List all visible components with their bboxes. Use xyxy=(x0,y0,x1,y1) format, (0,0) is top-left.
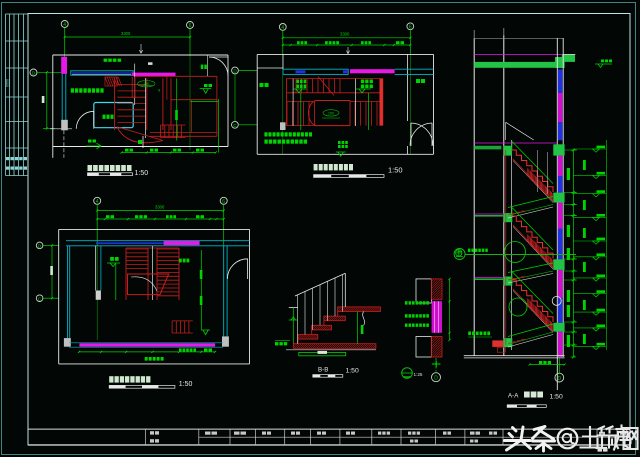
svg-text:4: 4 xyxy=(63,22,66,28)
svg-text:D: D xyxy=(557,376,561,382)
svg-text:6: 6 xyxy=(222,199,225,205)
svg-text:1:50: 1:50 xyxy=(346,368,359,375)
svg-text:6: 6 xyxy=(409,25,412,31)
svg-text:150: 150 xyxy=(328,112,334,116)
svg-text:1:50: 1:50 xyxy=(179,381,193,388)
svg-text:4: 4 xyxy=(281,25,284,31)
svg-text:3300: 3300 xyxy=(121,31,131,36)
svg-text:3300: 3300 xyxy=(155,204,165,209)
svg-text:3300: 3300 xyxy=(340,32,350,37)
svg-text:1:50: 1:50 xyxy=(135,170,149,177)
svg-text:1:50: 1:50 xyxy=(388,166,403,175)
svg-text:D: D xyxy=(434,376,438,382)
svg-text:6: 6 xyxy=(189,23,192,29)
svg-text:A-A: A-A xyxy=(508,393,519,400)
svg-text:4: 4 xyxy=(96,199,99,205)
svg-text:B-B: B-B xyxy=(318,366,328,373)
svg-text:1:25: 1:25 xyxy=(414,372,423,377)
svg-text:1:50: 1:50 xyxy=(550,394,563,401)
